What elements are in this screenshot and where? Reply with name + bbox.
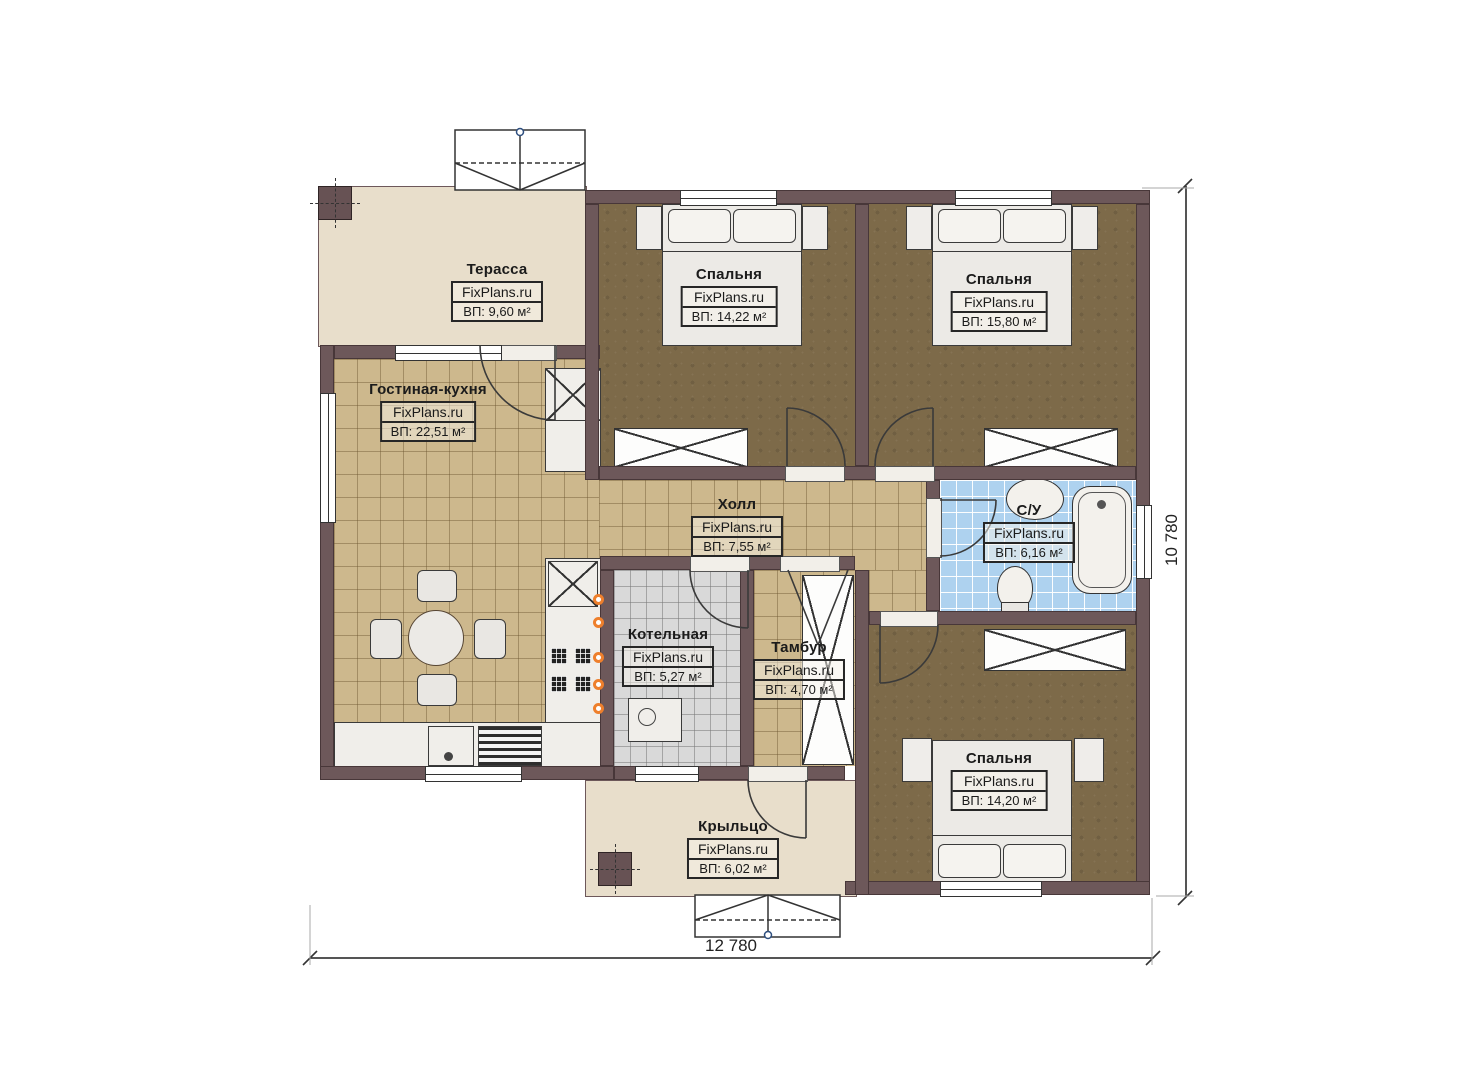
watermark-box: FixPlans.ru ВП: 14,22 м² xyxy=(681,286,778,327)
door-threshold xyxy=(880,611,938,627)
appliance-grill xyxy=(478,726,542,766)
watermark-box: FixPlans.ru ВП: 6,02 м² xyxy=(687,838,779,879)
room-label-porch: Крыльцо FixPlans.ru ВП: 6,02 м² xyxy=(687,818,779,879)
watermark-box: FixPlans.ru ВП: 9,60 м² xyxy=(451,281,543,322)
stove-burner xyxy=(575,648,591,664)
window xyxy=(940,881,1042,897)
watermark-box: FixPlans.ru ВП: 6,16 м² xyxy=(983,522,1075,563)
watermark-box: FixPlans.ru ВП: 15,80 м² xyxy=(951,291,1048,332)
radiator-dot xyxy=(593,703,604,714)
room-name: Котельная xyxy=(628,626,708,643)
nightstand xyxy=(902,738,932,782)
room-area: ВП: 6,02 м² xyxy=(689,860,777,877)
canopy-symbol-top xyxy=(455,129,585,191)
dimension-label-height: 10 780 xyxy=(1162,500,1182,580)
room-area: ВП: 5,27 м² xyxy=(624,668,712,685)
pillow xyxy=(938,844,1001,878)
chair xyxy=(370,619,402,659)
radiator-dot xyxy=(593,652,604,663)
stove-burner xyxy=(551,648,567,664)
window xyxy=(635,766,699,782)
room-label-bedroom-3: Спальня FixPlans.ru ВП: 14,20 м² xyxy=(951,750,1048,811)
room-name: Терасса xyxy=(467,261,528,278)
window xyxy=(425,766,522,782)
faucet-icon xyxy=(444,752,453,761)
room-area: ВП: 6,16 м² xyxy=(985,544,1073,561)
pillow xyxy=(938,209,1001,243)
watermark: FixPlans.ru xyxy=(453,283,541,303)
door-threshold xyxy=(785,466,845,482)
room-label-vestibule: Тамбур FixPlans.ru ВП: 4,70 м² xyxy=(753,639,845,700)
room-name: Тамбур xyxy=(771,639,827,656)
dimension-line-right xyxy=(1185,186,1187,896)
room-name: Спальня xyxy=(966,271,1032,288)
stove-burner xyxy=(575,676,591,692)
wall-segment xyxy=(599,466,1136,480)
pillow xyxy=(733,209,796,243)
room-area: ВП: 7,55 м² xyxy=(693,538,781,555)
room-label-bedroom-2: Спальня FixPlans.ru ВП: 15,80 м² xyxy=(951,271,1048,332)
wardrobe-icon xyxy=(984,629,1126,671)
room-label-living-kitchen: Гостиная-кухня FixPlans.ru ВП: 22,51 м² xyxy=(369,381,487,442)
boiler-burner-icon xyxy=(638,708,656,726)
nightstand xyxy=(636,206,662,250)
nightstand xyxy=(1074,738,1104,782)
watermark: FixPlans.ru xyxy=(382,403,475,423)
dimension-line-bottom xyxy=(310,957,1153,959)
room-name: Спальня xyxy=(966,750,1032,767)
watermark-box: FixPlans.ru ВП: 7,55 м² xyxy=(691,516,783,557)
room-name: Гостиная-кухня xyxy=(369,381,487,398)
room-area: ВП: 22,51 м² xyxy=(382,423,475,440)
window xyxy=(680,190,777,206)
room-area: ВП: 14,20 м² xyxy=(953,792,1046,809)
pillow xyxy=(1003,209,1066,243)
room-label-hall: Холл FixPlans.ru ВП: 7,55 м² xyxy=(691,496,783,557)
dining-table xyxy=(408,610,464,666)
door-threshold xyxy=(690,556,750,572)
room-name: Холл xyxy=(718,496,756,513)
chair xyxy=(474,619,506,659)
wardrobe-icon xyxy=(614,428,748,468)
chair xyxy=(417,570,457,602)
window-slider xyxy=(395,345,502,361)
nightstand xyxy=(802,206,828,250)
room-label-bedroom-1: Спальня FixPlans.ru ВП: 14,22 м² xyxy=(681,266,778,327)
room-area: ВП: 14,22 м² xyxy=(683,308,776,325)
watermark: FixPlans.ru xyxy=(953,293,1046,313)
watermark: FixPlans.ru xyxy=(755,661,843,681)
watermark: FixPlans.ru xyxy=(683,288,776,308)
chair xyxy=(417,674,457,706)
watermark: FixPlans.ru xyxy=(624,648,712,668)
column xyxy=(318,186,352,220)
window xyxy=(320,393,336,523)
nightstand xyxy=(906,206,932,250)
wall-segment xyxy=(585,190,1150,204)
watermark: FixPlans.ru xyxy=(689,840,777,860)
door-threshold xyxy=(500,345,557,361)
watermark-box: FixPlans.ru ВП: 5,27 м² xyxy=(622,646,714,687)
radiator-dot xyxy=(593,594,604,605)
bathtub-drain xyxy=(1097,500,1106,509)
watermark: FixPlans.ru xyxy=(985,524,1073,544)
room-label-bathroom: С/У FixPlans.ru ВП: 6,16 м² xyxy=(983,502,1075,563)
watermark-box: FixPlans.ru ВП: 14,20 м² xyxy=(951,770,1048,811)
door-threshold xyxy=(748,766,808,782)
radiator-dot xyxy=(593,617,604,628)
window xyxy=(1136,505,1152,579)
room-name: Спальня xyxy=(696,266,762,283)
door-threshold xyxy=(780,556,840,572)
watermark-box: FixPlans.ru ВП: 4,70 м² xyxy=(753,659,845,700)
watermark-box: FixPlans.ru ВП: 22,51 м² xyxy=(380,401,477,442)
dimension-label-width: 12 780 xyxy=(705,936,757,956)
wardrobe-icon xyxy=(984,428,1118,468)
wall-segment xyxy=(740,570,754,766)
kitchen-sink xyxy=(548,561,598,607)
room-name: Крыльцо xyxy=(698,818,768,835)
nightstand xyxy=(1072,206,1098,250)
door-threshold xyxy=(926,498,942,558)
door-threshold xyxy=(875,466,935,482)
window xyxy=(955,190,1052,206)
canopy-symbol-bottom xyxy=(695,895,840,939)
room-area: ВП: 15,80 м² xyxy=(953,313,1046,330)
room-label-boiler-room: Котельная FixPlans.ru ВП: 5,27 м² xyxy=(622,626,714,687)
radiator-dot xyxy=(593,679,604,690)
wall-segment xyxy=(585,204,599,480)
floor-plan-canvas: Терасса FixPlans.ru ВП: 9,60 м² Гостиная… xyxy=(0,0,1473,1080)
column xyxy=(598,852,632,886)
wall-segment xyxy=(855,570,869,895)
room-label-terrace: Терасса FixPlans.ru ВП: 9,60 м² xyxy=(451,261,543,322)
stove-burner xyxy=(551,676,567,692)
room-area: ВП: 4,70 м² xyxy=(755,681,843,698)
room-area: ВП: 9,60 м² xyxy=(453,303,541,320)
room-name: С/У xyxy=(1017,502,1042,519)
watermark: FixPlans.ru xyxy=(953,772,1046,792)
wall-segment xyxy=(855,204,869,466)
pillow xyxy=(1003,844,1066,878)
pillow xyxy=(668,209,731,243)
watermark: FixPlans.ru xyxy=(693,518,781,538)
